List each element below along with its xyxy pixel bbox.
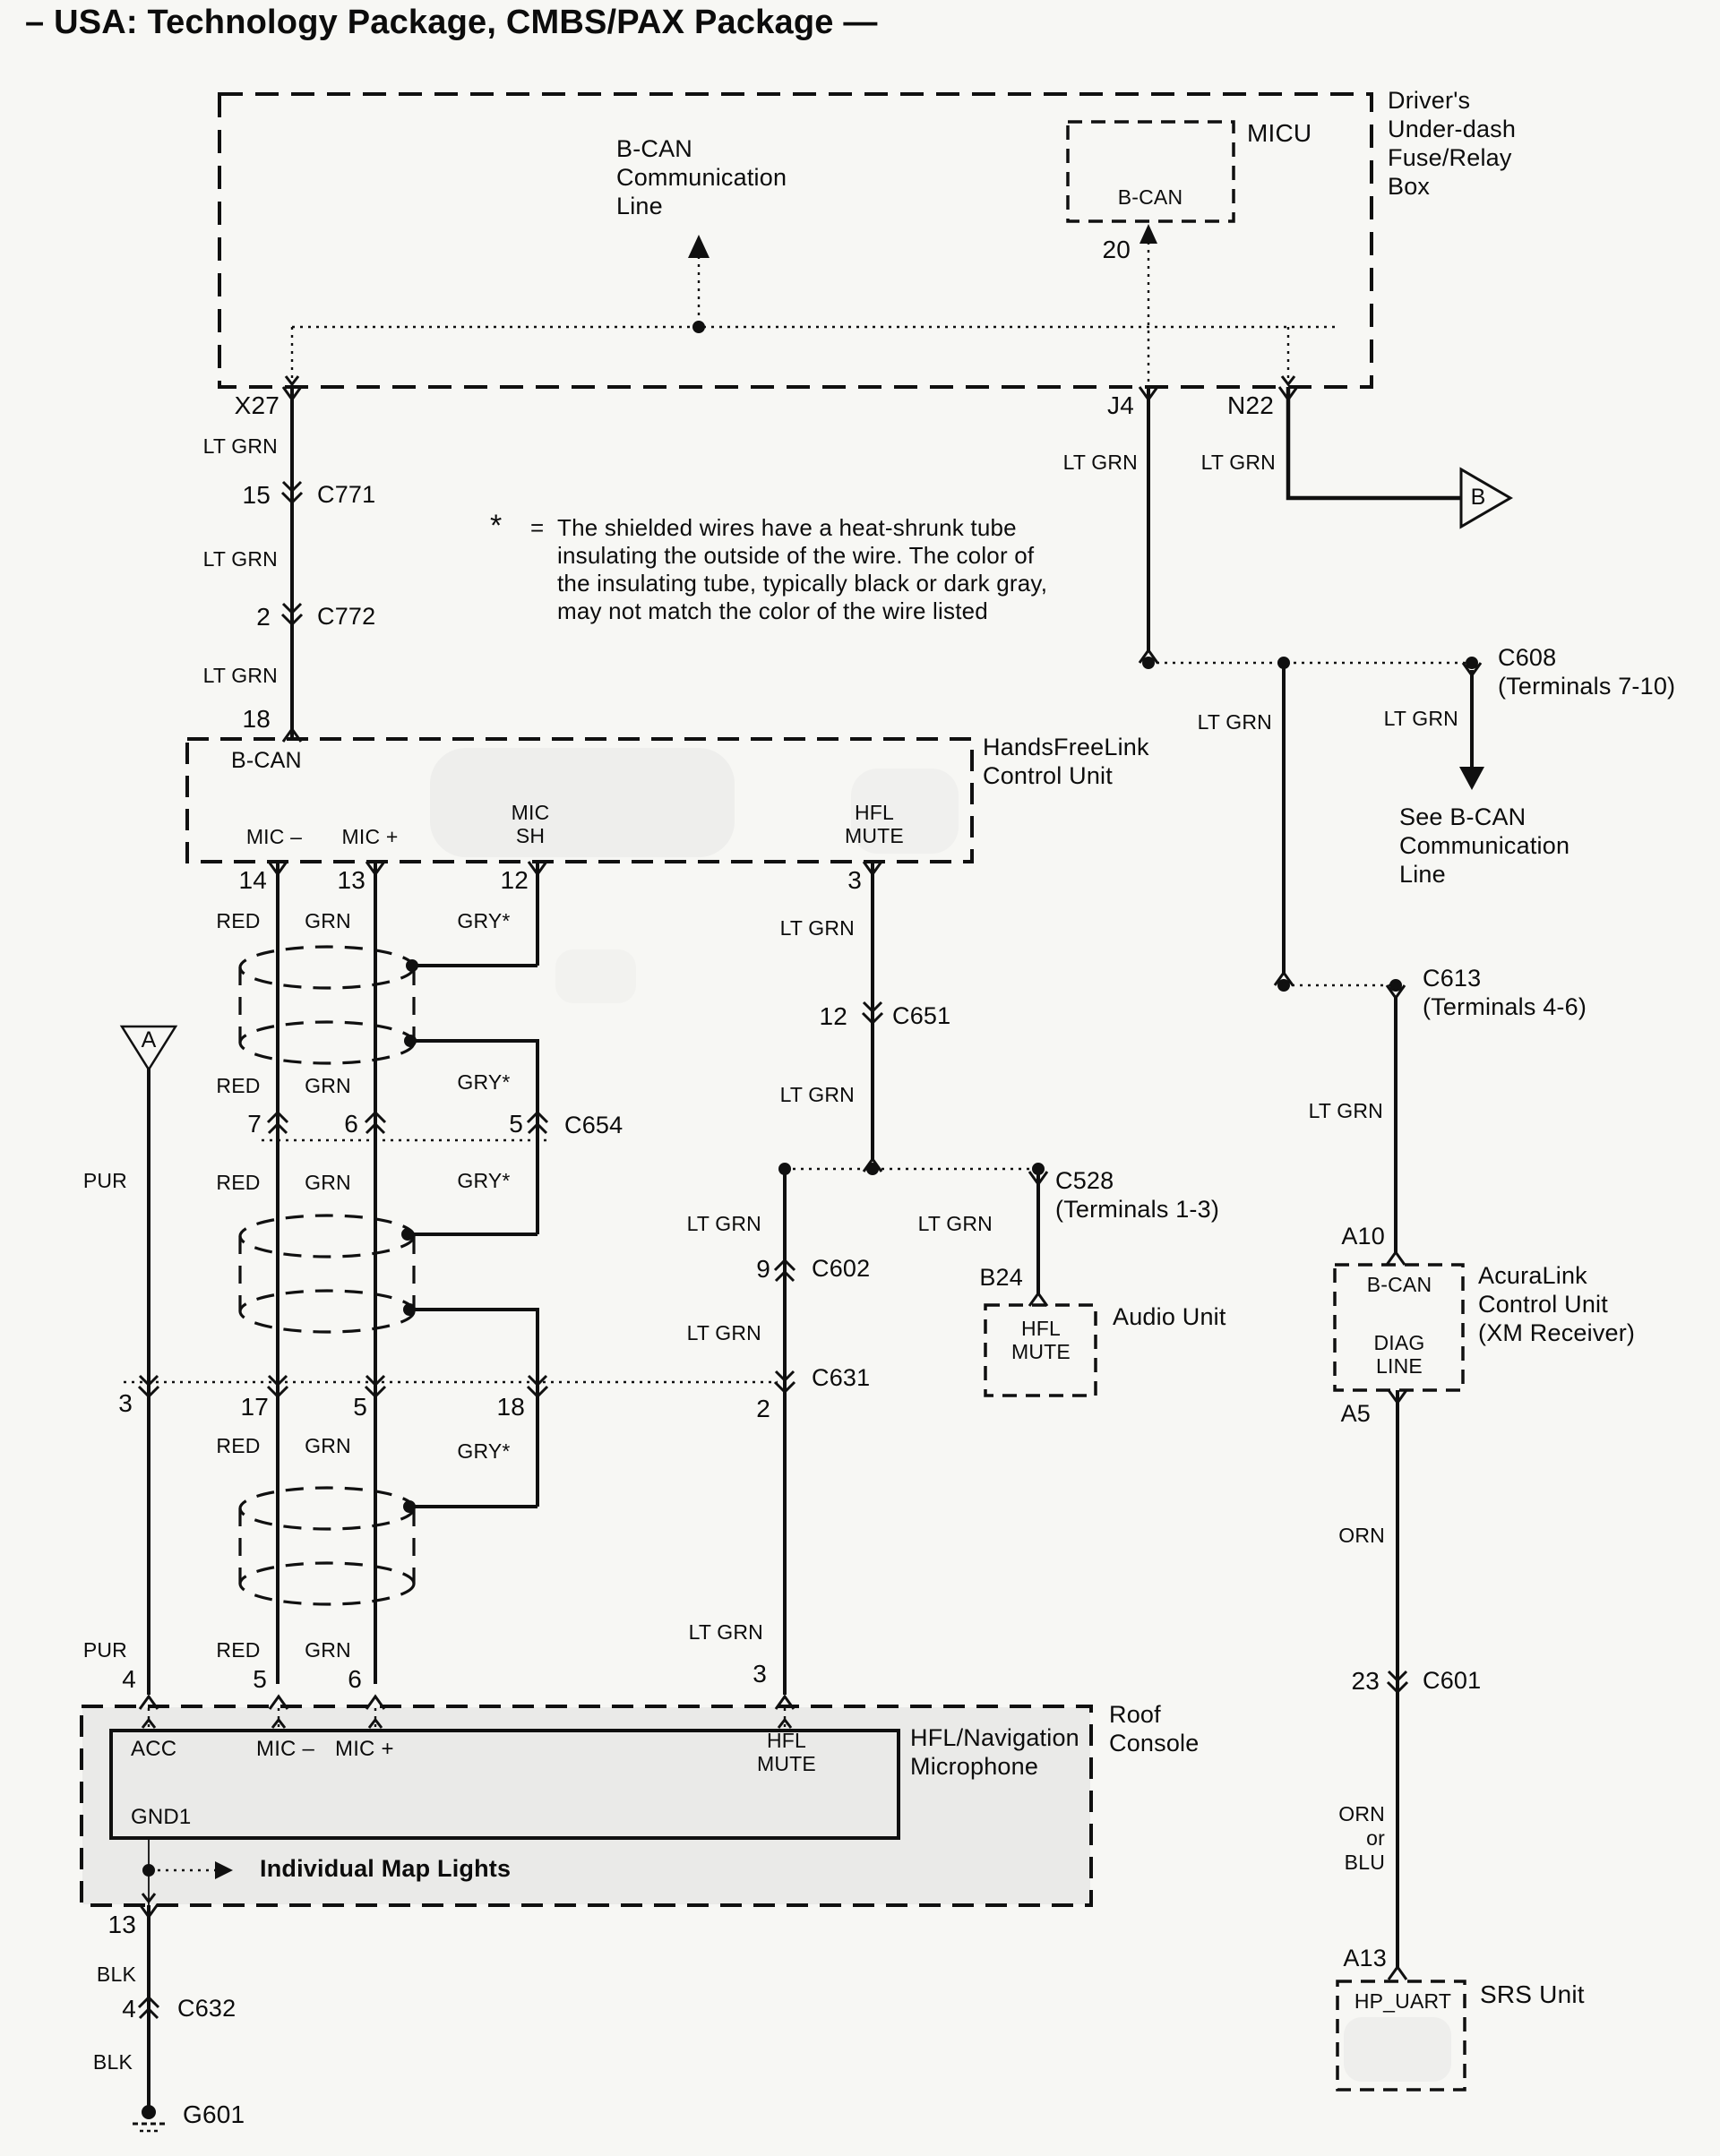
micu-bcan-pin: B-CAN [1118, 185, 1183, 210]
hfl-cu-label: HandsFreeLink Control Unit [983, 733, 1149, 790]
conn-c602: C602 [812, 1254, 870, 1283]
wire-ltgrn-bl2: LT GRN [687, 1320, 761, 1345]
pin-6: 6 [344, 1109, 358, 1138]
pin-a5: A5 [1341, 1399, 1371, 1428]
wire-ltgrn-hm1: LT GRN [780, 915, 855, 941]
pin-13-gnd: 13 [107, 1910, 136, 1939]
conn-c771: C771 [317, 480, 375, 509]
pin-4-mic: 4 [122, 1664, 136, 1694]
roof-console-label: Roof Console [1109, 1700, 1199, 1757]
pin-5-mic: 5 [253, 1664, 267, 1694]
conn-c772: C772 [317, 602, 375, 631]
comm-line-arrowhead-icon [688, 235, 709, 258]
hfl-pin-bcan: B-CAN [231, 747, 302, 774]
junction-dot [405, 1305, 415, 1315]
wire-ltgrn-c613: LT GRN [1309, 1098, 1383, 1123]
pin-12: 12 [500, 865, 529, 895]
wire-grn-1: GRN [305, 908, 351, 933]
pin-6-mic: 6 [348, 1664, 362, 1694]
a-arrow-letter: A [142, 1026, 157, 1053]
pin-fork-icon [1387, 1252, 1405, 1265]
junction-dot [1279, 658, 1289, 668]
hfl-pin-mic-sh: MIC SH [512, 801, 550, 847]
pin-b24: B24 [979, 1263, 1023, 1292]
audio-unit-label: Audio Unit [1113, 1302, 1226, 1331]
see-bcan-label: See B-CAN Communication Line [1399, 803, 1569, 889]
mic-pin-minus: MIC – [256, 1736, 314, 1762]
pin20-arrowhead-icon [1139, 224, 1157, 244]
junction-dot [1467, 658, 1477, 668]
junction-dot [408, 961, 417, 971]
wire-orn-1: ORN [1338, 1523, 1385, 1548]
wire-grn-3: GRN [305, 1170, 351, 1195]
wire-ltgrn-hm2: LT GRN [780, 1082, 855, 1107]
pin-9: 9 [756, 1254, 770, 1284]
pin-fork-icon [270, 1696, 288, 1709]
page-title: – USA: Technology Package, CMBS/PAX Pack… [25, 4, 878, 42]
map-lights-label: Individual Map Lights [260, 1854, 511, 1883]
pin-5: 5 [509, 1109, 523, 1138]
acura-pin-diag: DIAG LINE [1373, 1331, 1424, 1378]
gnd-g601: G601 [183, 2100, 245, 2129]
wire-ltgrn-j4: LT GRN [1063, 450, 1138, 475]
conn-c654: C654 [564, 1111, 623, 1139]
shield-coils [240, 947, 414, 1604]
junction-dot [780, 1164, 790, 1174]
junction-dot [403, 1230, 413, 1240]
note-equals: = [530, 514, 544, 542]
wire-ltgrn-c608: LT GRN [1384, 706, 1458, 731]
junction-dot [1391, 981, 1401, 991]
junction-dot [405, 1502, 415, 1512]
pin-2: 2 [256, 602, 271, 631]
junction-dot [406, 1036, 416, 1046]
conn-x27: X27 [235, 391, 279, 420]
srs-unit-label: SRS Unit [1480, 1980, 1585, 2009]
pin-4-c632: 4 [122, 1994, 136, 2023]
note-star: * [490, 509, 502, 544]
wire-red-3: RED [216, 1170, 260, 1195]
pin-7: 7 [247, 1109, 262, 1138]
junction-dot [1279, 981, 1289, 991]
pin-3-hfl: 3 [847, 865, 862, 895]
junction-dot [1034, 1164, 1044, 1174]
pin-12-c651: 12 [819, 1001, 847, 1031]
junction-dot [1144, 658, 1154, 668]
b-offpage-arrow-icon [1461, 469, 1510, 527]
audio-pin-hfl-mute: HFL MUTE [1011, 1317, 1071, 1363]
wire-grn-2: GRN [305, 1073, 351, 1098]
pin-14: 14 [238, 865, 267, 895]
wire-ltgrn-x27a: LT GRN [203, 434, 278, 459]
note-text: The shielded wires have a heat-shrunk tu… [557, 514, 1047, 625]
hfl-nav-mic-label: HFL/Navigation Microphone [910, 1723, 1079, 1781]
conn-c631: C631 [812, 1363, 870, 1392]
wire-ltgrn-nbranch: LT GRN [1198, 709, 1272, 734]
pin-5b: 5 [353, 1392, 367, 1422]
conn-c528: C528 (Terminals 1-3) [1055, 1166, 1219, 1224]
acura-pin-bcan: B-CAN [1367, 1272, 1432, 1297]
wire-red-1: RED [216, 908, 260, 933]
bcan-comm-line-label: B-CAN Communication Line [616, 134, 787, 220]
wire-ltgrn-bl1: LT GRN [687, 1211, 761, 1236]
wire-red-2: RED [216, 1073, 260, 1098]
wiring-diagram-page: – USA: Technology Package, CMBS/PAX Pack… [0, 0, 1720, 2156]
junction-dot [868, 1164, 878, 1174]
wire-ltgrn-c528: LT GRN [918, 1211, 993, 1236]
mic-pin-plus: MIC + [335, 1736, 394, 1762]
wire-grn-5: GRN [305, 1637, 351, 1662]
junction-dot [144, 1866, 154, 1876]
wire-pur-1: PUR [83, 1168, 127, 1193]
pin-18b: 18 [496, 1392, 525, 1422]
wire-blk-2: BLK [93, 2049, 133, 2074]
pin-15: 15 [242, 480, 271, 510]
wire-gry-1: GRY* [457, 908, 510, 933]
hfl-pin-mic-plus: MIC + [342, 824, 399, 849]
wire-pur-2: PUR [83, 1637, 127, 1662]
b-arrow-letter: B [1471, 484, 1486, 511]
hfl-pin-hfl-mute: HFL MUTE [845, 801, 904, 847]
conn-n22: N22 [1227, 391, 1274, 420]
wire-gry-3: GRY* [457, 1168, 510, 1193]
wire-ltgrn-bl3: LT GRN [689, 1619, 763, 1645]
wire-ltgrn-n22: LT GRN [1201, 450, 1276, 475]
conn-j4: J4 [1107, 391, 1134, 420]
srs-pin-hp-uart: HP_UART [1354, 1989, 1451, 2014]
pin-13: 13 [337, 865, 365, 895]
pin-3-left: 3 [118, 1388, 133, 1418]
pin-18: 18 [242, 704, 271, 734]
wire-n22-to-b [1288, 387, 1461, 498]
ground-symbol-g601-icon [133, 2106, 165, 2132]
c608-arrowhead-icon [1459, 767, 1484, 790]
pin-fork-icon [1389, 1967, 1406, 1980]
wire-gry-4: GRY* [457, 1439, 510, 1464]
wire-orn-blu: ORN or BLU [1338, 1802, 1385, 1875]
wire-red-5: RED [216, 1637, 260, 1662]
wire-blk-1: BLK [97, 1962, 136, 1987]
pin-20: 20 [1102, 235, 1131, 264]
pin-23: 23 [1351, 1666, 1380, 1696]
conn-c613: C613 (Terminals 4-6) [1423, 964, 1587, 1021]
conn-c601: C601 [1423, 1666, 1481, 1695]
conn-c632: C632 [177, 1994, 236, 2023]
acuralink-label: AcuraLink Control Unit (XM Receiver) [1478, 1261, 1635, 1347]
conn-c651: C651 [892, 1001, 950, 1030]
mic-pin-acc: ACC [131, 1736, 176, 1762]
pin-a10: A10 [1341, 1222, 1385, 1250]
wire-ltgrn-x27b: LT GRN [203, 546, 278, 571]
wire-grn-4: GRN [305, 1433, 351, 1458]
wire-gry-2: GRY* [457, 1069, 510, 1095]
conn-c608: C608 (Terminals 7-10) [1498, 643, 1675, 700]
wire-red-4: RED [216, 1433, 260, 1458]
mic-pin-hfl-mute: HFL MUTE [757, 1729, 816, 1775]
hfl-pin-mic-minus: MIC – [246, 824, 302, 849]
pin-3-mic: 3 [752, 1659, 767, 1688]
pin-a13: A13 [1343, 1944, 1387, 1972]
pin-17: 17 [240, 1392, 269, 1422]
fuse-box-label: Driver's Under-dash Fuse/Relay Box [1388, 86, 1516, 201]
fuse-box [219, 94, 1372, 387]
junction-dot [694, 322, 704, 332]
micu-label: MICU [1247, 118, 1311, 148]
mic-pin-gnd1: GND1 [131, 1804, 191, 1830]
pin-fork-icon [366, 1696, 384, 1709]
wire-ltgrn-x27c: LT GRN [203, 663, 278, 688]
pin-2-c631: 2 [756, 1394, 770, 1423]
